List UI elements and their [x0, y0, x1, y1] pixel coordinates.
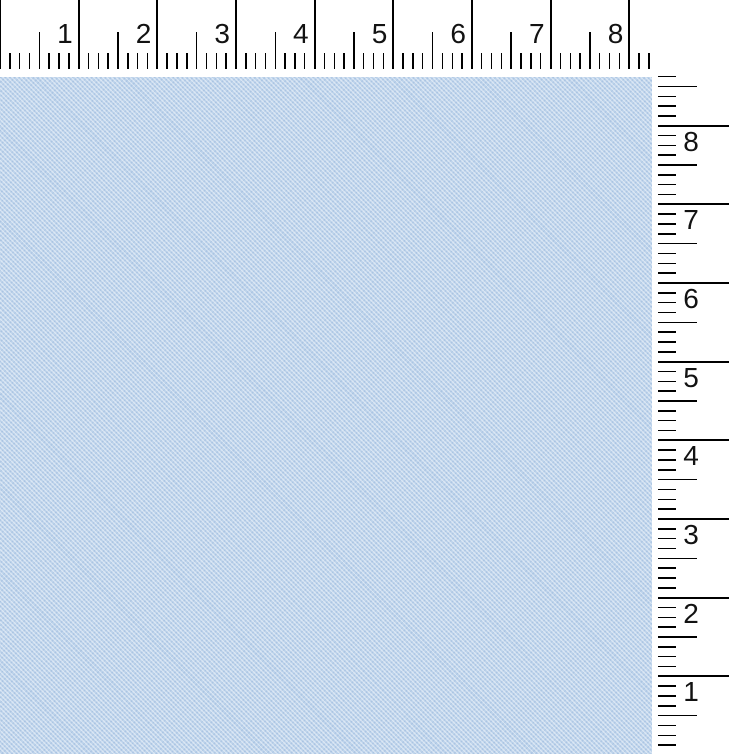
- v-ruler-tick-mark: [658, 430, 676, 431]
- h-ruler-tick-mark: [648, 53, 649, 69]
- v-ruler-tick-mark: [658, 459, 676, 460]
- h-ruler-tick-mark: [0, 0, 1, 69]
- h-ruler-number-7: 7: [505, 20, 545, 48]
- h-ruler-number-3: 3: [190, 20, 230, 48]
- v-ruler-tick-mark: [658, 528, 676, 529]
- v-ruler-tick-mark: [658, 558, 697, 560]
- h-ruler-tick-mark: [520, 53, 521, 69]
- v-ruler-tick-mark: [658, 174, 676, 175]
- h-ruler-tick-mark: [471, 0, 473, 69]
- h-ruler-number-6: 6: [426, 20, 466, 48]
- h-ruler-tick-mark: [156, 0, 158, 69]
- v-ruler-tick-mark: [658, 744, 676, 745]
- v-ruler-number-4: 4: [678, 442, 704, 470]
- v-ruler-number-3: 3: [678, 521, 704, 549]
- v-ruler-tick-mark: [658, 115, 676, 116]
- v-ruler-tick-mark: [658, 705, 676, 706]
- v-ruler-tick-mark: [658, 272, 676, 273]
- v-ruler-tick-mark: [658, 96, 676, 97]
- v-ruler-tick-mark: [658, 449, 676, 450]
- v-ruler-tick-mark: [658, 617, 676, 618]
- v-ruler-number-8: 8: [678, 128, 704, 156]
- h-ruler-tick-mark: [176, 53, 177, 69]
- v-ruler-tick-mark: [658, 322, 697, 324]
- h-ruler-tick-mark: [58, 53, 59, 69]
- v-ruler-tick-mark: [658, 695, 676, 696]
- v-ruler-tick-mark: [658, 105, 676, 106]
- v-ruler-tick-mark: [658, 725, 676, 726]
- h-ruler-tick-mark: [235, 0, 237, 69]
- h-ruler-tick-mark: [284, 53, 285, 69]
- h-ruler-tick-mark: [638, 53, 639, 69]
- v-ruler-tick-mark: [658, 233, 676, 234]
- h-ruler-tick-mark: [550, 0, 552, 69]
- v-ruler-tick-mark: [658, 469, 676, 470]
- h-ruler-tick-mark: [599, 53, 600, 69]
- h-ruler-tick-mark: [530, 53, 531, 69]
- h-ruler-tick-mark: [442, 53, 443, 69]
- v-ruler-tick-mark: [658, 685, 676, 686]
- v-ruler-number-5: 5: [678, 364, 704, 392]
- v-ruler-tick-mark: [658, 154, 676, 155]
- v-ruler-tick-mark: [658, 253, 676, 254]
- v-ruler-tick-mark: [658, 715, 697, 717]
- h-ruler-tick-mark: [304, 53, 305, 69]
- h-ruler-tick-mark: [78, 0, 80, 69]
- v-ruler-tick-mark: [658, 341, 676, 342]
- h-ruler-tick-mark: [48, 53, 49, 69]
- v-ruler-tick-mark: [658, 499, 676, 500]
- h-ruler-tick-mark: [609, 53, 610, 69]
- vertical-ruler: 87654321: [658, 70, 729, 754]
- h-ruler-tick-mark: [481, 53, 482, 69]
- h-ruler-tick-mark: [540, 53, 541, 69]
- h-ruler-tick-mark: [186, 53, 187, 69]
- h-ruler-tick-mark: [452, 53, 453, 69]
- v-ruler-tick-mark: [658, 145, 676, 146]
- v-ruler-tick-mark: [658, 577, 676, 578]
- h-ruler-tick-mark: [68, 53, 69, 69]
- h-ruler-number-8: 8: [583, 20, 623, 48]
- v-ruler-tick-mark: [658, 331, 676, 332]
- v-ruler-tick-mark: [658, 548, 676, 549]
- h-ruler-number-5: 5: [347, 20, 387, 48]
- h-ruler-tick-mark: [501, 53, 502, 69]
- h-ruler-tick-mark: [265, 53, 266, 69]
- h-ruler-tick-mark: [294, 53, 295, 69]
- v-ruler-tick-mark: [658, 135, 676, 136]
- v-ruler-tick-mark: [658, 351, 676, 352]
- h-ruler-tick-mark: [255, 53, 256, 69]
- h-ruler-number-1: 1: [33, 20, 73, 48]
- v-ruler-tick-mark: [658, 656, 676, 657]
- v-ruler-tick-mark: [658, 567, 676, 568]
- h-ruler-tick-mark: [628, 0, 630, 69]
- h-ruler-tick-mark: [579, 53, 580, 69]
- v-ruler-tick-mark: [658, 381, 676, 382]
- v-ruler-tick-mark: [658, 626, 676, 627]
- v-ruler-tick-mark: [658, 223, 676, 224]
- h-ruler-tick-mark: [461, 53, 462, 69]
- h-ruler-tick-mark: [363, 53, 364, 69]
- h-ruler-tick-mark: [127, 53, 128, 69]
- h-ruler-tick-mark: [402, 53, 403, 69]
- h-ruler-tick-mark: [422, 53, 423, 69]
- v-ruler-tick-mark: [658, 587, 676, 588]
- h-ruler-tick-mark: [314, 0, 316, 69]
- v-ruler-number-1: 1: [678, 678, 704, 706]
- v-ruler-tick-mark: [658, 263, 676, 264]
- h-ruler-tick-mark: [166, 53, 167, 69]
- h-ruler-tick-mark: [107, 53, 108, 69]
- v-ruler-tick-mark: [658, 420, 676, 421]
- v-ruler-tick-mark: [658, 164, 697, 166]
- v-ruler-tick-mark: [658, 76, 676, 77]
- v-ruler-tick-mark: [658, 213, 676, 214]
- v-ruler-number-7: 7: [678, 206, 704, 234]
- h-ruler-tick-mark: [9, 53, 10, 69]
- h-ruler-number-4: 4: [269, 20, 309, 48]
- h-ruler-tick-mark: [225, 53, 226, 69]
- v-ruler-tick-mark: [658, 390, 676, 391]
- h-ruler-tick-mark: [206, 53, 207, 69]
- horizontal-ruler: 12345678: [0, 0, 655, 77]
- v-ruler-tick-mark: [658, 371, 676, 372]
- v-ruler-tick-mark: [658, 508, 676, 509]
- v-ruler-number-6: 6: [678, 285, 704, 313]
- h-ruler-tick-mark: [570, 53, 571, 69]
- v-ruler-tick-mark: [658, 302, 676, 303]
- h-ruler-tick-mark: [560, 53, 561, 69]
- h-ruler-tick-mark: [373, 53, 374, 69]
- v-ruler-tick-mark: [658, 86, 697, 88]
- h-ruler-tick-mark: [137, 53, 138, 69]
- h-ruler-tick-mark: [334, 53, 335, 69]
- h-ruler-number-2: 2: [111, 20, 151, 48]
- h-ruler-tick-mark: [343, 53, 344, 69]
- v-ruler-tick-mark: [658, 243, 697, 245]
- v-ruler-tick-mark: [658, 735, 676, 736]
- v-ruler-number-2: 2: [678, 600, 704, 628]
- v-ruler-tick-mark: [658, 292, 676, 293]
- v-ruler-tick-mark: [658, 479, 697, 481]
- h-ruler-tick-mark: [245, 53, 246, 69]
- h-ruler-tick-mark: [324, 53, 325, 69]
- v-ruler-tick-mark: [658, 636, 697, 638]
- h-ruler-tick-mark: [216, 53, 217, 69]
- h-ruler-tick-mark: [412, 53, 413, 69]
- v-ruler-tick-mark: [658, 489, 676, 490]
- h-ruler-tick-mark: [29, 53, 30, 69]
- v-ruler-tick-mark: [658, 410, 676, 411]
- h-ruler-tick-mark: [383, 53, 384, 69]
- h-ruler-tick-mark: [619, 53, 620, 69]
- v-ruler-tick-mark: [658, 646, 676, 647]
- fabric-canvas[interactable]: [0, 77, 652, 754]
- v-ruler-tick-mark: [658, 607, 676, 608]
- v-ruler-tick-mark: [658, 194, 676, 195]
- v-ruler-tick-mark: [658, 184, 676, 185]
- h-ruler-tick-mark: [392, 0, 394, 69]
- v-ruler-tick-mark: [658, 312, 676, 313]
- v-ruler-tick-mark: [658, 400, 697, 402]
- app-window: 12345678 87654321: [0, 0, 729, 754]
- h-ruler-tick-mark: [491, 53, 492, 69]
- h-ruler-tick-mark: [88, 53, 89, 69]
- v-ruler-tick-mark: [658, 538, 676, 539]
- h-ruler-tick-mark: [19, 53, 20, 69]
- h-ruler-tick-mark: [98, 53, 99, 69]
- v-ruler-tick-mark: [658, 666, 676, 667]
- h-ruler-tick-mark: [147, 53, 148, 69]
